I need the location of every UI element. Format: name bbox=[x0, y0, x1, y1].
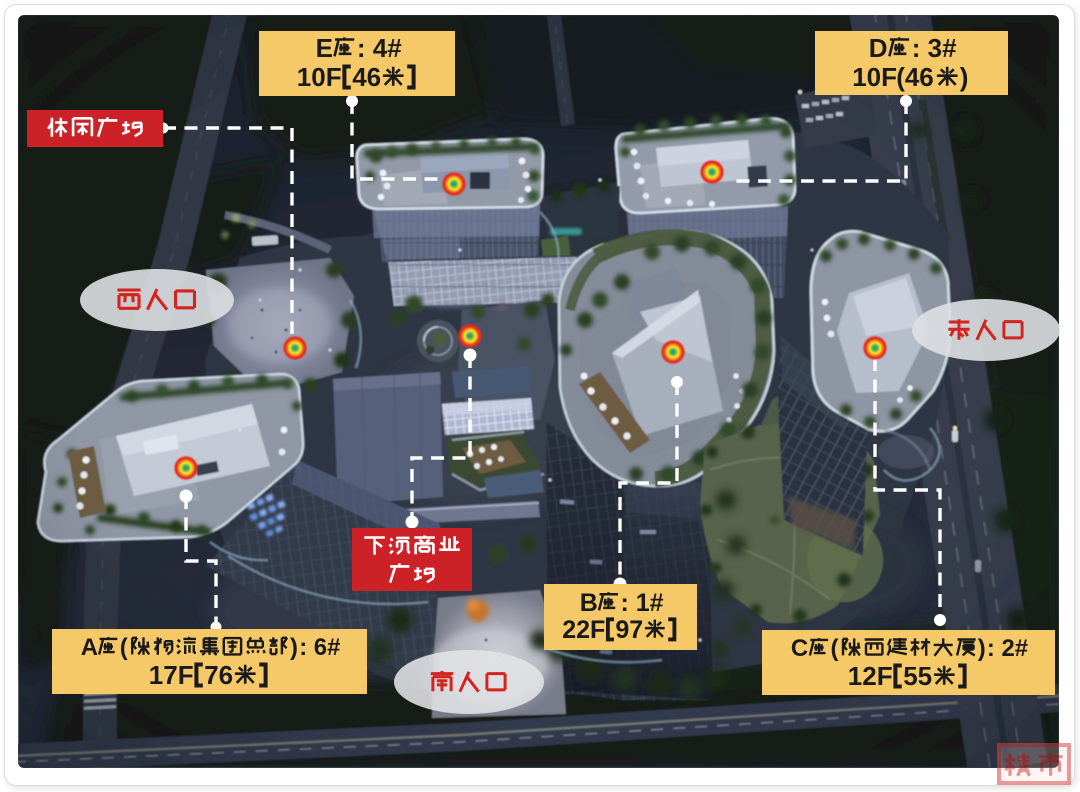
svg-text:: 4#: : 4# bbox=[357, 33, 402, 63]
svg-text:): ) bbox=[960, 62, 969, 92]
svg-text:12F: 12F bbox=[848, 661, 893, 691]
svg-text:(: ( bbox=[120, 634, 128, 661]
svg-text:A: A bbox=[81, 634, 98, 661]
svg-text:B: B bbox=[580, 589, 598, 617]
svg-text:46: 46 bbox=[352, 62, 381, 92]
svg-text:(46: (46 bbox=[896, 62, 934, 92]
svg-text:: 3#: : 3# bbox=[912, 33, 957, 63]
svg-text:10F: 10F bbox=[852, 62, 897, 92]
svg-text:97: 97 bbox=[615, 616, 643, 644]
svg-text:E: E bbox=[316, 33, 333, 63]
svg-text:: 6#: : 6# bbox=[299, 634, 340, 661]
svg-text:(: ( bbox=[831, 635, 839, 662]
svg-text:C: C bbox=[791, 635, 808, 662]
svg-text:): ) bbox=[978, 635, 986, 662]
svg-text:17F: 17F bbox=[149, 660, 194, 690]
svg-text:): ) bbox=[290, 634, 298, 661]
svg-text:: 1#: : 1# bbox=[621, 589, 664, 617]
svg-text:D: D bbox=[869, 33, 888, 63]
svg-text:10F: 10F bbox=[297, 62, 342, 92]
svg-text:55: 55 bbox=[903, 661, 932, 691]
svg-text:: 2#: : 2# bbox=[987, 635, 1028, 662]
svg-text:76: 76 bbox=[204, 660, 233, 690]
svg-text:22F: 22F bbox=[562, 616, 605, 644]
